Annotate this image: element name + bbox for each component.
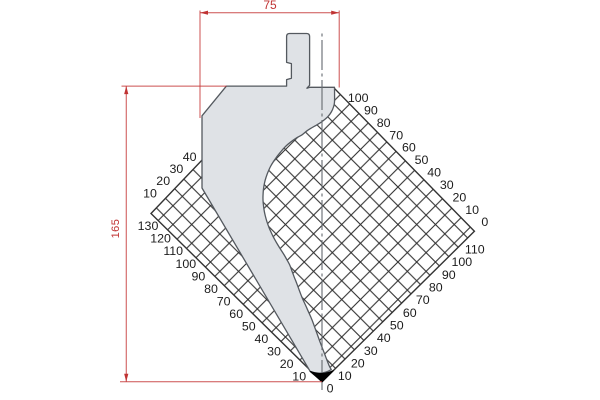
svg-text:20: 20 [453, 190, 467, 204]
svg-text:20: 20 [351, 357, 365, 371]
svg-text:70: 70 [416, 293, 430, 307]
svg-text:40: 40 [377, 331, 391, 345]
svg-text:90: 90 [364, 103, 378, 117]
svg-text:75: 75 [263, 0, 277, 12]
svg-text:30: 30 [440, 178, 454, 192]
svg-text:40: 40 [183, 150, 197, 164]
svg-text:165: 165 [110, 219, 122, 239]
svg-text:30: 30 [364, 344, 378, 358]
svg-text:70: 70 [389, 128, 403, 142]
svg-text:10: 10 [465, 203, 479, 217]
svg-text:90: 90 [442, 268, 456, 282]
svg-text:80: 80 [429, 281, 443, 295]
svg-text:80: 80 [377, 116, 391, 130]
svg-text:20: 20 [156, 174, 170, 188]
svg-text:30: 30 [170, 162, 184, 176]
svg-text:0: 0 [481, 215, 488, 229]
svg-text:40: 40 [427, 166, 441, 180]
svg-text:10: 10 [338, 369, 352, 383]
svg-text:60: 60 [403, 306, 417, 320]
svg-text:50: 50 [390, 319, 404, 333]
svg-text:0: 0 [327, 382, 334, 396]
svg-text:10: 10 [292, 370, 306, 384]
svg-text:100: 100 [348, 91, 369, 105]
svg-text:10: 10 [143, 186, 157, 200]
svg-text:50: 50 [415, 153, 429, 167]
svg-text:60: 60 [402, 141, 416, 155]
